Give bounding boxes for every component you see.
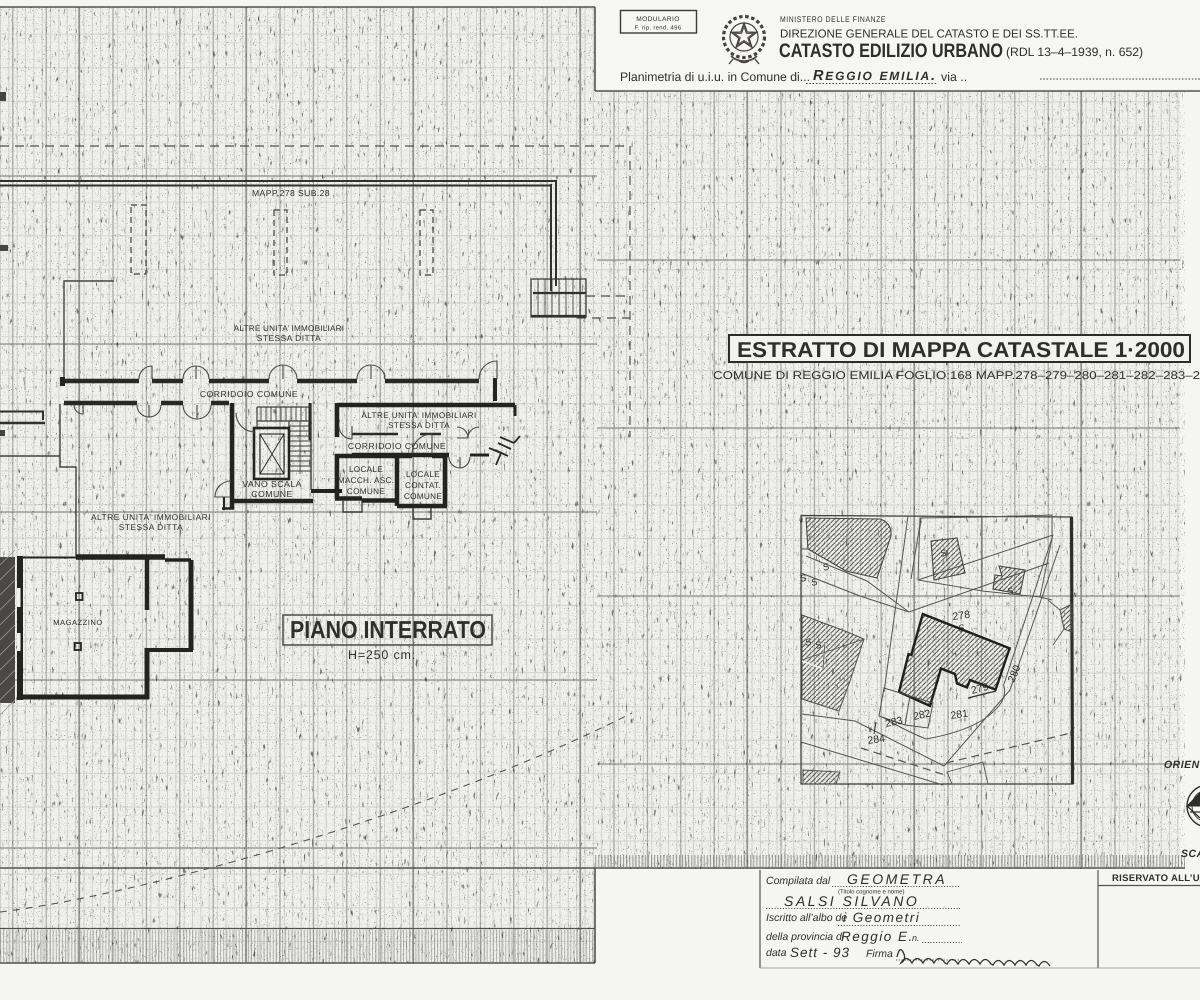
svg-text:VANO SCALA: VANO SCALA: [242, 479, 302, 489]
svg-text:COMUNE: COMUNE: [347, 487, 385, 496]
svg-text:STESSA DITTA: STESSA DITTA: [119, 522, 183, 532]
svg-text:DIREZIONE GENERALE DEL CATASTO: DIREZIONE GENERALE DEL CATASTO E DEI SS.…: [780, 28, 1078, 41]
svg-text:ORIEN: ORIEN: [1164, 759, 1200, 771]
svg-text:n.: n.: [912, 933, 920, 943]
svg-text:COMUNE DI REGGIO EMILIA FOGLIO: COMUNE DI REGGIO EMILIA FOGLIO:168 MAPP.…: [713, 370, 1200, 382]
svg-text:MODULARIO: MODULARIO: [636, 16, 680, 23]
svg-text:Compilata dal: Compilata dal: [766, 875, 831, 887]
svg-text:F. rip. rend. 496: F. rip. rend. 496: [635, 25, 682, 32]
svg-text:ALTRE UNITA’ IMMOBILIARI: ALTRE UNITA’ IMMOBILIARI: [91, 512, 211, 522]
svg-text:SALSI SILVANO: SALSI SILVANO: [784, 893, 919, 909]
svg-text:SCA: SCA: [1181, 848, 1200, 860]
svg-text:Sett - 93: Sett - 93: [790, 945, 850, 960]
svg-text:RISERVATO ALL’UFFIC: RISERVATO ALL’UFFIC: [1112, 873, 1200, 884]
svg-text:CORRIDOIO COMUNE: CORRIDOIO COMUNE: [348, 441, 446, 451]
svg-text:STESSA DITTA: STESSA DITTA: [388, 421, 450, 430]
svg-text:LOCALE: LOCALE: [406, 470, 440, 479]
svg-text:STESSA DITTA: STESSA DITTA: [257, 333, 321, 343]
svg-text:Reggio E.: Reggio E.: [841, 929, 914, 944]
svg-text:REGGIO EMILIA.: REGGIO EMILIA.: [813, 68, 937, 84]
svg-text:CATASTO EDILIZIO URBANO: CATASTO EDILIZIO URBANO: [779, 40, 1003, 62]
svg-text:della provincia di: della provincia di: [766, 931, 845, 943]
svg-text:H=250 cm:: H=250 cm:: [348, 648, 416, 662]
svg-text:COMUNE: COMUNE: [251, 489, 293, 499]
svg-text:MAPP.278 SUB.28: MAPP.278 SUB.28: [252, 188, 330, 198]
svg-text:LOCALE: LOCALE: [349, 465, 383, 474]
svg-text:Firma: Firma: [866, 948, 893, 960]
svg-text:ALTRE UNITA’ IMMOBILIARI: ALTRE UNITA’ IMMOBILIARI: [361, 411, 476, 420]
svg-text:via ..: via ..: [941, 70, 967, 84]
svg-text:278: 278: [952, 609, 971, 623]
svg-text:COMUNE: COMUNE: [404, 492, 442, 501]
svg-text:ALTRE UNITA’ IMMOBILIARI: ALTRE UNITA’ IMMOBILIARI: [234, 324, 345, 333]
svg-text:281: 281: [950, 708, 969, 722]
svg-text:i Geometri: i Geometri: [843, 910, 920, 925]
svg-text:ESTRATTO DI MAPPA CATASTALE 1·: ESTRATTO DI MAPPA CATASTALE 1·2000: [737, 338, 1185, 362]
svg-text:GEOMETRA: GEOMETRA: [847, 871, 947, 887]
svg-text:284: 284: [867, 733, 886, 747]
svg-text:CORRIDOIO COMUNE: CORRIDOIO COMUNE: [200, 389, 298, 399]
svg-text:Iscritto all’albo de: Iscritto all’albo de: [766, 912, 847, 924]
svg-text:data: data: [766, 947, 787, 959]
svg-text:CONTAT.: CONTAT.: [405, 481, 441, 490]
svg-text:MAGAZZINO: MAGAZZINO: [53, 618, 103, 627]
svg-text:MACCH. ASC.: MACCH. ASC.: [338, 476, 395, 485]
svg-text:PIANO INTERRATO: PIANO INTERRATO: [290, 617, 486, 644]
svg-text:MINISTERO DELLE FINANZE: MINISTERO DELLE FINANZE: [780, 15, 886, 24]
svg-text:Planimetria di u.i.u. in Comun: Planimetria di u.i.u. in Comune di...: [620, 70, 810, 84]
svg-text:(RDL 13–4–1939, n. 652): (RDL 13–4–1939, n. 652): [1006, 45, 1143, 59]
